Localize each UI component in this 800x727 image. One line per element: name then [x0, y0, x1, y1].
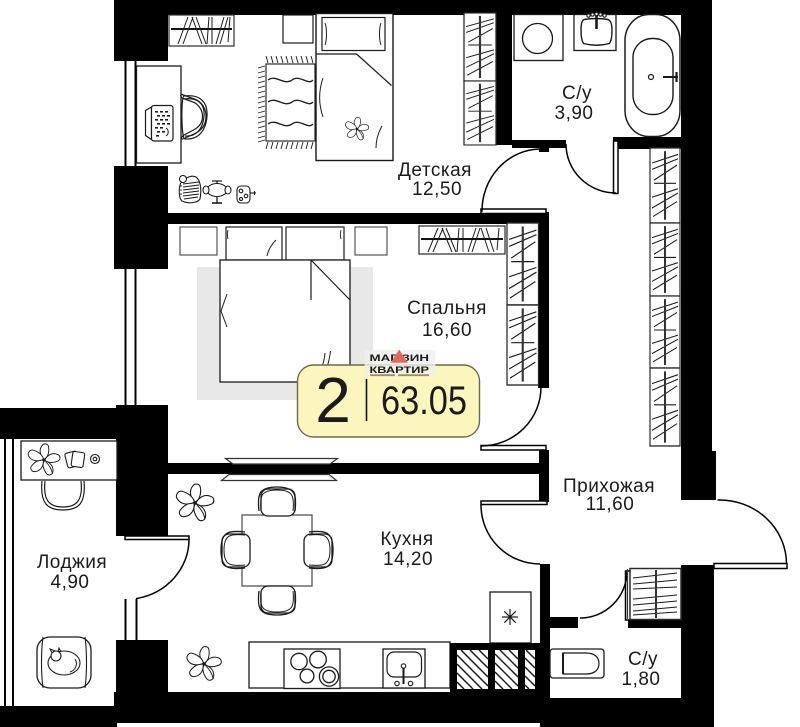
svg-text:КВАРТИР: КВАРТИР	[370, 365, 430, 376]
svg-text:1,80: 1,80	[622, 669, 661, 690]
svg-text:Лоджия: Лоджия	[37, 552, 107, 573]
svg-text:С/у: С/у	[628, 649, 658, 670]
svg-text:Кухня: Кухня	[380, 529, 433, 550]
svg-text:11,60: 11,60	[586, 494, 635, 515]
svg-text:16,60: 16,60	[422, 320, 472, 341]
svg-text:2: 2	[315, 364, 351, 436]
svg-text:Детская: Детская	[398, 160, 472, 181]
svg-text:4,90: 4,90	[51, 572, 90, 593]
svg-text:Спальня: Спальня	[407, 298, 487, 319]
svg-text:14,20: 14,20	[383, 549, 433, 570]
svg-text:3,90: 3,90	[555, 103, 594, 124]
svg-text:63.05: 63.05	[381, 379, 467, 423]
svg-text:12,50: 12,50	[412, 179, 462, 200]
svg-text:С/у: С/у	[562, 83, 592, 104]
